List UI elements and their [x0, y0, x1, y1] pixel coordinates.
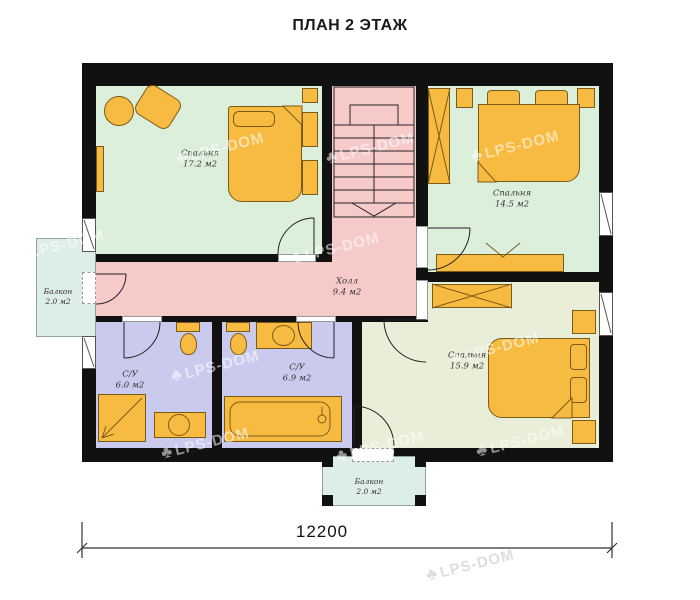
room-label-balcony-left: Балкон2.0 м2 — [28, 287, 88, 307]
shower — [98, 394, 146, 442]
room-label-bathroom-2: С/У6.9 м2 — [252, 363, 342, 386]
window — [82, 336, 96, 369]
wardrobe — [428, 88, 450, 184]
nightstand — [302, 112, 318, 147]
room-label-bedroom-1: Спальня17.2 м2 — [155, 149, 245, 172]
bedroom-1-door-threshold — [278, 254, 316, 262]
page-title: ПЛАН 2 ЭТАЖ — [0, 17, 700, 35]
double-bed — [478, 104, 580, 182]
tree-icon: ♣ — [424, 563, 441, 585]
desk — [436, 254, 564, 272]
room-bedroom-3-annex — [362, 322, 428, 448]
window — [599, 292, 613, 336]
balcony-bottom-door-threshold — [352, 448, 394, 462]
wardrobe — [432, 284, 512, 308]
balcony-pillar — [322, 456, 333, 467]
balcony-pillar — [415, 456, 426, 467]
dresser — [96, 146, 104, 192]
window — [599, 192, 613, 236]
round-table — [104, 96, 134, 126]
pillow — [570, 377, 587, 403]
toilet-bowl — [180, 333, 197, 355]
nightstand — [456, 88, 473, 108]
tree-icon: ♣ — [14, 243, 31, 265]
watermark: ♣LPS-DOM — [424, 544, 516, 585]
nightstand — [302, 160, 318, 195]
dimension-value: 12200 — [296, 522, 348, 542]
window — [82, 218, 96, 252]
bedroom-3-door-threshold — [416, 280, 428, 320]
toilet-tank — [176, 322, 200, 332]
balcony-pillar — [415, 495, 426, 506]
room-label-bedroom-2: Спальня14.5 м2 — [467, 189, 557, 212]
pillow — [570, 344, 587, 370]
room-label-hall: Холл9.4 м2 — [302, 277, 392, 300]
bathroom-2-door-threshold — [296, 316, 336, 322]
shelf — [302, 88, 318, 103]
bedroom-2-door-threshold — [416, 226, 428, 268]
bathroom-1-door-threshold — [122, 316, 162, 322]
bathtub — [224, 396, 342, 442]
balcony-pillar — [322, 495, 333, 506]
room-label-bathroom-1: С/У6.0 м2 — [85, 370, 175, 393]
room-label-bedroom-3: Спальня15.9 м2 — [422, 351, 512, 374]
sink-basin — [168, 414, 190, 436]
toilet-bowl — [230, 333, 247, 355]
room-hall-stairs — [332, 86, 416, 262]
floor-plan-page: ПЛАН 2 ЭТАЖ — [0, 0, 700, 600]
vanity-basin — [272, 325, 295, 346]
toilet-tank — [226, 322, 250, 332]
nightstand — [572, 310, 596, 334]
room-label-balcony-bottom: Балкон2.0 м2 — [339, 477, 399, 497]
nightstand — [572, 420, 596, 444]
pillow — [233, 111, 275, 127]
